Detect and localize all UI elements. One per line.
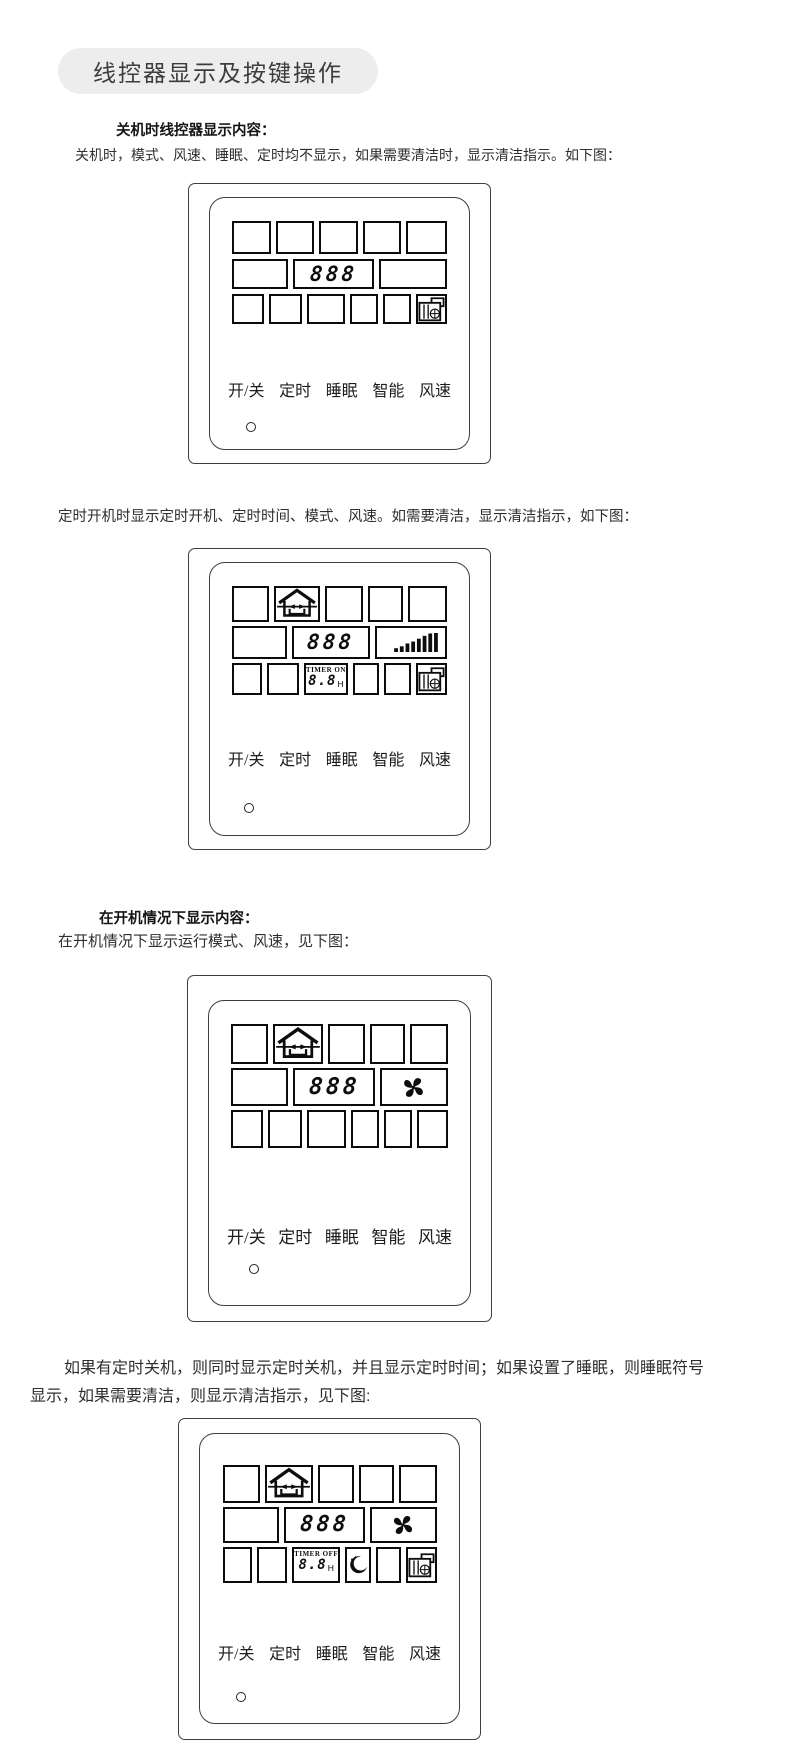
timer-button-label: 定时 <box>269 1640 301 1664</box>
lcd-segment-cell <box>363 221 401 254</box>
controller-diagram-power-on: 888 开/关 定时 睡眠 智 <box>187 975 492 1322</box>
lcd-display: 888 <box>232 221 447 324</box>
button-labels-row: 开/关 定时 睡眠 智能 风速 <box>227 1223 452 1248</box>
home-mode-icon <box>267 1465 311 1503</box>
sleep-button-label: 睡眠 <box>326 746 358 770</box>
power-button-label: 开/关 <box>218 1640 254 1664</box>
timer-hours-digits: 8.8 <box>308 674 336 688</box>
lcd-row-1 <box>232 586 447 622</box>
lcd-fan-cell <box>370 1507 437 1543</box>
timer-button-label: 定时 <box>278 1223 312 1248</box>
lcd-fan-cell <box>380 1068 448 1106</box>
timer-hours-unit: H <box>337 680 343 689</box>
sleep-button-label: 睡眠 <box>326 377 358 401</box>
lcd-segment-cell <box>408 586 447 622</box>
fan-speed-button-label: 风速 <box>419 746 451 770</box>
led-indicator <box>246 422 256 432</box>
off-state-heading: 关机时线控器显示内容： <box>116 119 276 140</box>
lcd-row-2: 888 <box>232 259 447 289</box>
lcd-segment-cell <box>232 294 264 324</box>
power-button-label: 开/关 <box>228 746 264 770</box>
controller-panel: 888 开/关 定时 睡眠 智 <box>209 197 470 450</box>
lcd-mode-cell <box>274 586 320 622</box>
lcd-segment-cell <box>223 1547 252 1583</box>
lcd-segment-cell <box>351 1110 379 1148</box>
fan-blade-icon <box>390 1512 416 1538</box>
lcd-segment-cell <box>370 1024 405 1064</box>
lcd-row-3: TIMER OFF 8.8 H <box>223 1547 437 1583</box>
lcd-segment-cell <box>232 259 288 289</box>
power-button-label: 开/关 <box>227 1223 266 1248</box>
lcd-segment-cell <box>376 1547 401 1583</box>
lcd-segment-cell <box>231 1068 288 1106</box>
lcd-row-1 <box>231 1024 448 1064</box>
clean-filter-icon <box>418 297 445 322</box>
lcd-segment-cell <box>384 1110 412 1148</box>
lcd-display: 888 TIMER ON 8.8 H <box>232 586 447 695</box>
display-digits: 888 <box>306 632 354 653</box>
off-state-paragraph: 关机时，模式、风速、睡眠、定时均不显示，如果需要清洁时，显示清洁指示。如下图： <box>75 145 621 165</box>
lcd-row-2: 888 <box>223 1507 437 1543</box>
lcd-mode-cell <box>273 1024 323 1064</box>
lcd-digits-cell: 888 <box>293 259 374 289</box>
lcd-sleep-cell <box>345 1547 370 1583</box>
lcd-segment-cell <box>379 259 447 289</box>
timer-on-paragraph: 定时开机时显示定时开机、定时时间、模式、风速。如需要清洁，显示清洁指示，如下图： <box>58 505 638 526</box>
lcd-display: 888 <box>231 1024 448 1148</box>
lcd-digits-cell: 888 <box>284 1507 364 1543</box>
controller-panel: 888 开/关 定时 睡眠 智 <box>208 1000 471 1306</box>
sleep-button-label: 睡眠 <box>325 1223 359 1248</box>
lcd-timer-cell: TIMER ON 8.8 H <box>304 663 348 695</box>
home-mode-icon <box>276 586 318 622</box>
timer-button-label: 定时 <box>279 746 311 770</box>
lcd-row-2: 888 <box>231 1068 448 1106</box>
button-labels-row: 开/关 定时 睡眠 智能 风速 <box>228 377 451 401</box>
on-state-paragraph: 在开机情况下显示运行模式、风速，见下图： <box>58 930 358 951</box>
timer-hours-unit: H <box>328 1564 334 1573</box>
lcd-segment-cell <box>410 1024 448 1064</box>
timer-off-paragraph-line-1: 如果有定时关机，则同时显示定时关机，并且显示定时时间；如果设置了睡眠，则睡眠符号 <box>30 1355 750 1383</box>
controller-panel: 888 TIMER ON 8.8 H <box>209 562 470 836</box>
lcd-segment-cell <box>318 1465 355 1503</box>
lcd-segment-cell <box>268 1110 302 1148</box>
lcd-fan-speed-cell <box>375 626 447 659</box>
controller-diagram-timer-off: 888 TIMER OFF 8.8 H <box>178 1418 481 1740</box>
button-labels-row: 开/关 定时 睡眠 智能 风速 <box>228 746 451 770</box>
lcd-clean-cell <box>406 1547 437 1583</box>
lcd-segment-cell <box>328 1024 365 1064</box>
fan-speed-button-label: 风速 <box>409 1640 441 1664</box>
lcd-digits-cell: 888 <box>292 626 370 659</box>
lcd-segment-cell <box>223 1507 279 1543</box>
fan-speed-button-label: 风速 <box>418 1223 452 1248</box>
lcd-segment-cell <box>406 221 447 254</box>
lcd-row-1 <box>223 1465 437 1503</box>
lcd-row-3: TIMER ON 8.8 H <box>232 663 447 695</box>
lcd-segment-cell <box>232 586 269 622</box>
page-title: 线控器显示及按键操作 <box>93 54 343 88</box>
controller-panel: 888 TIMER OFF 8.8 H <box>199 1433 460 1724</box>
lcd-segment-cell <box>325 586 362 622</box>
lcd-segment-cell <box>223 1465 260 1503</box>
controller-diagram-power-off: 888 开/关 定时 睡眠 智 <box>188 183 491 464</box>
lcd-segment-cell <box>232 626 287 659</box>
on-state-heading: 在开机情况下显示内容： <box>99 907 259 928</box>
lcd-row-1 <box>232 221 447 254</box>
lcd-segment-cell <box>232 221 271 254</box>
lcd-segment-cell <box>368 586 404 622</box>
clean-filter-icon <box>408 1553 435 1578</box>
lcd-segment-cell <box>353 663 380 695</box>
lcd-segment-cell <box>257 1547 287 1583</box>
power-button-label: 开/关 <box>228 377 264 401</box>
lcd-segment-cell <box>231 1024 268 1064</box>
timer-off-paragraph-line-2: 显示，如果需要清洁，则显示清洁指示，见下图: <box>30 1383 750 1411</box>
led-indicator <box>244 803 254 813</box>
lcd-segment-cell <box>276 221 314 254</box>
led-indicator <box>249 1264 259 1274</box>
controller-diagram-timer-on: 888 TIMER ON 8.8 H <box>188 548 491 850</box>
smart-button-label: 智能 <box>372 377 404 401</box>
lcd-segment-cell <box>307 1110 346 1148</box>
lcd-row-2: 888 <box>232 626 447 659</box>
section-title-pill: 线控器显示及按键操作 <box>58 48 378 94</box>
lcd-segment-cell <box>269 294 302 324</box>
smart-button-label: 智能 <box>371 1223 405 1248</box>
smart-button-label: 智能 <box>372 746 404 770</box>
lcd-segment-cell <box>384 663 411 695</box>
smart-button-label: 智能 <box>362 1640 394 1664</box>
lcd-segment-cell <box>231 1110 263 1148</box>
sleep-button-label: 睡眠 <box>316 1640 348 1664</box>
lcd-segment-cell <box>307 294 345 324</box>
home-mode-icon <box>275 1024 321 1064</box>
lcd-clean-cell <box>416 294 447 324</box>
display-digits: 888 <box>310 264 358 285</box>
lcd-segment-cell <box>359 1465 394 1503</box>
clean-filter-icon <box>418 667 445 692</box>
lcd-segment-cell <box>417 1110 448 1148</box>
lcd-row-3 <box>232 294 447 324</box>
fan-speed-bars-icon <box>394 633 438 652</box>
lcd-mode-cell <box>265 1465 313 1503</box>
display-digits: 888 <box>308 1076 360 1099</box>
fan-speed-button-label: 风速 <box>419 377 451 401</box>
fan-blade-icon <box>400 1074 427 1101</box>
lcd-timer-cell: TIMER OFF 8.8 H <box>292 1547 340 1583</box>
display-digits: 888 <box>299 1514 349 1536</box>
button-labels-row: 开/关 定时 睡眠 智能 风速 <box>218 1640 441 1664</box>
lcd-segment-cell <box>383 294 411 324</box>
timer-off-paragraph: 如果有定时关机，则同时显示定时关机，并且显示定时时间；如果设置了睡眠，则睡眠符号… <box>30 1355 750 1411</box>
lcd-clean-cell <box>416 663 447 695</box>
timer-hours-digits: 8.8 <box>298 1558 326 1572</box>
led-indicator <box>236 1692 246 1702</box>
lcd-segment-cell <box>232 663 262 695</box>
lcd-row-3 <box>231 1110 448 1148</box>
lcd-segment-cell <box>350 294 378 324</box>
timer-button-label: 定时 <box>279 377 311 401</box>
lcd-segment-cell <box>399 1465 437 1503</box>
lcd-display: 888 TIMER OFF 8.8 H <box>223 1465 437 1583</box>
sleep-moon-icon <box>348 1555 368 1575</box>
lcd-segment-cell <box>319 221 358 254</box>
lcd-digits-cell: 888 <box>293 1068 375 1106</box>
lcd-segment-cell <box>267 663 299 695</box>
